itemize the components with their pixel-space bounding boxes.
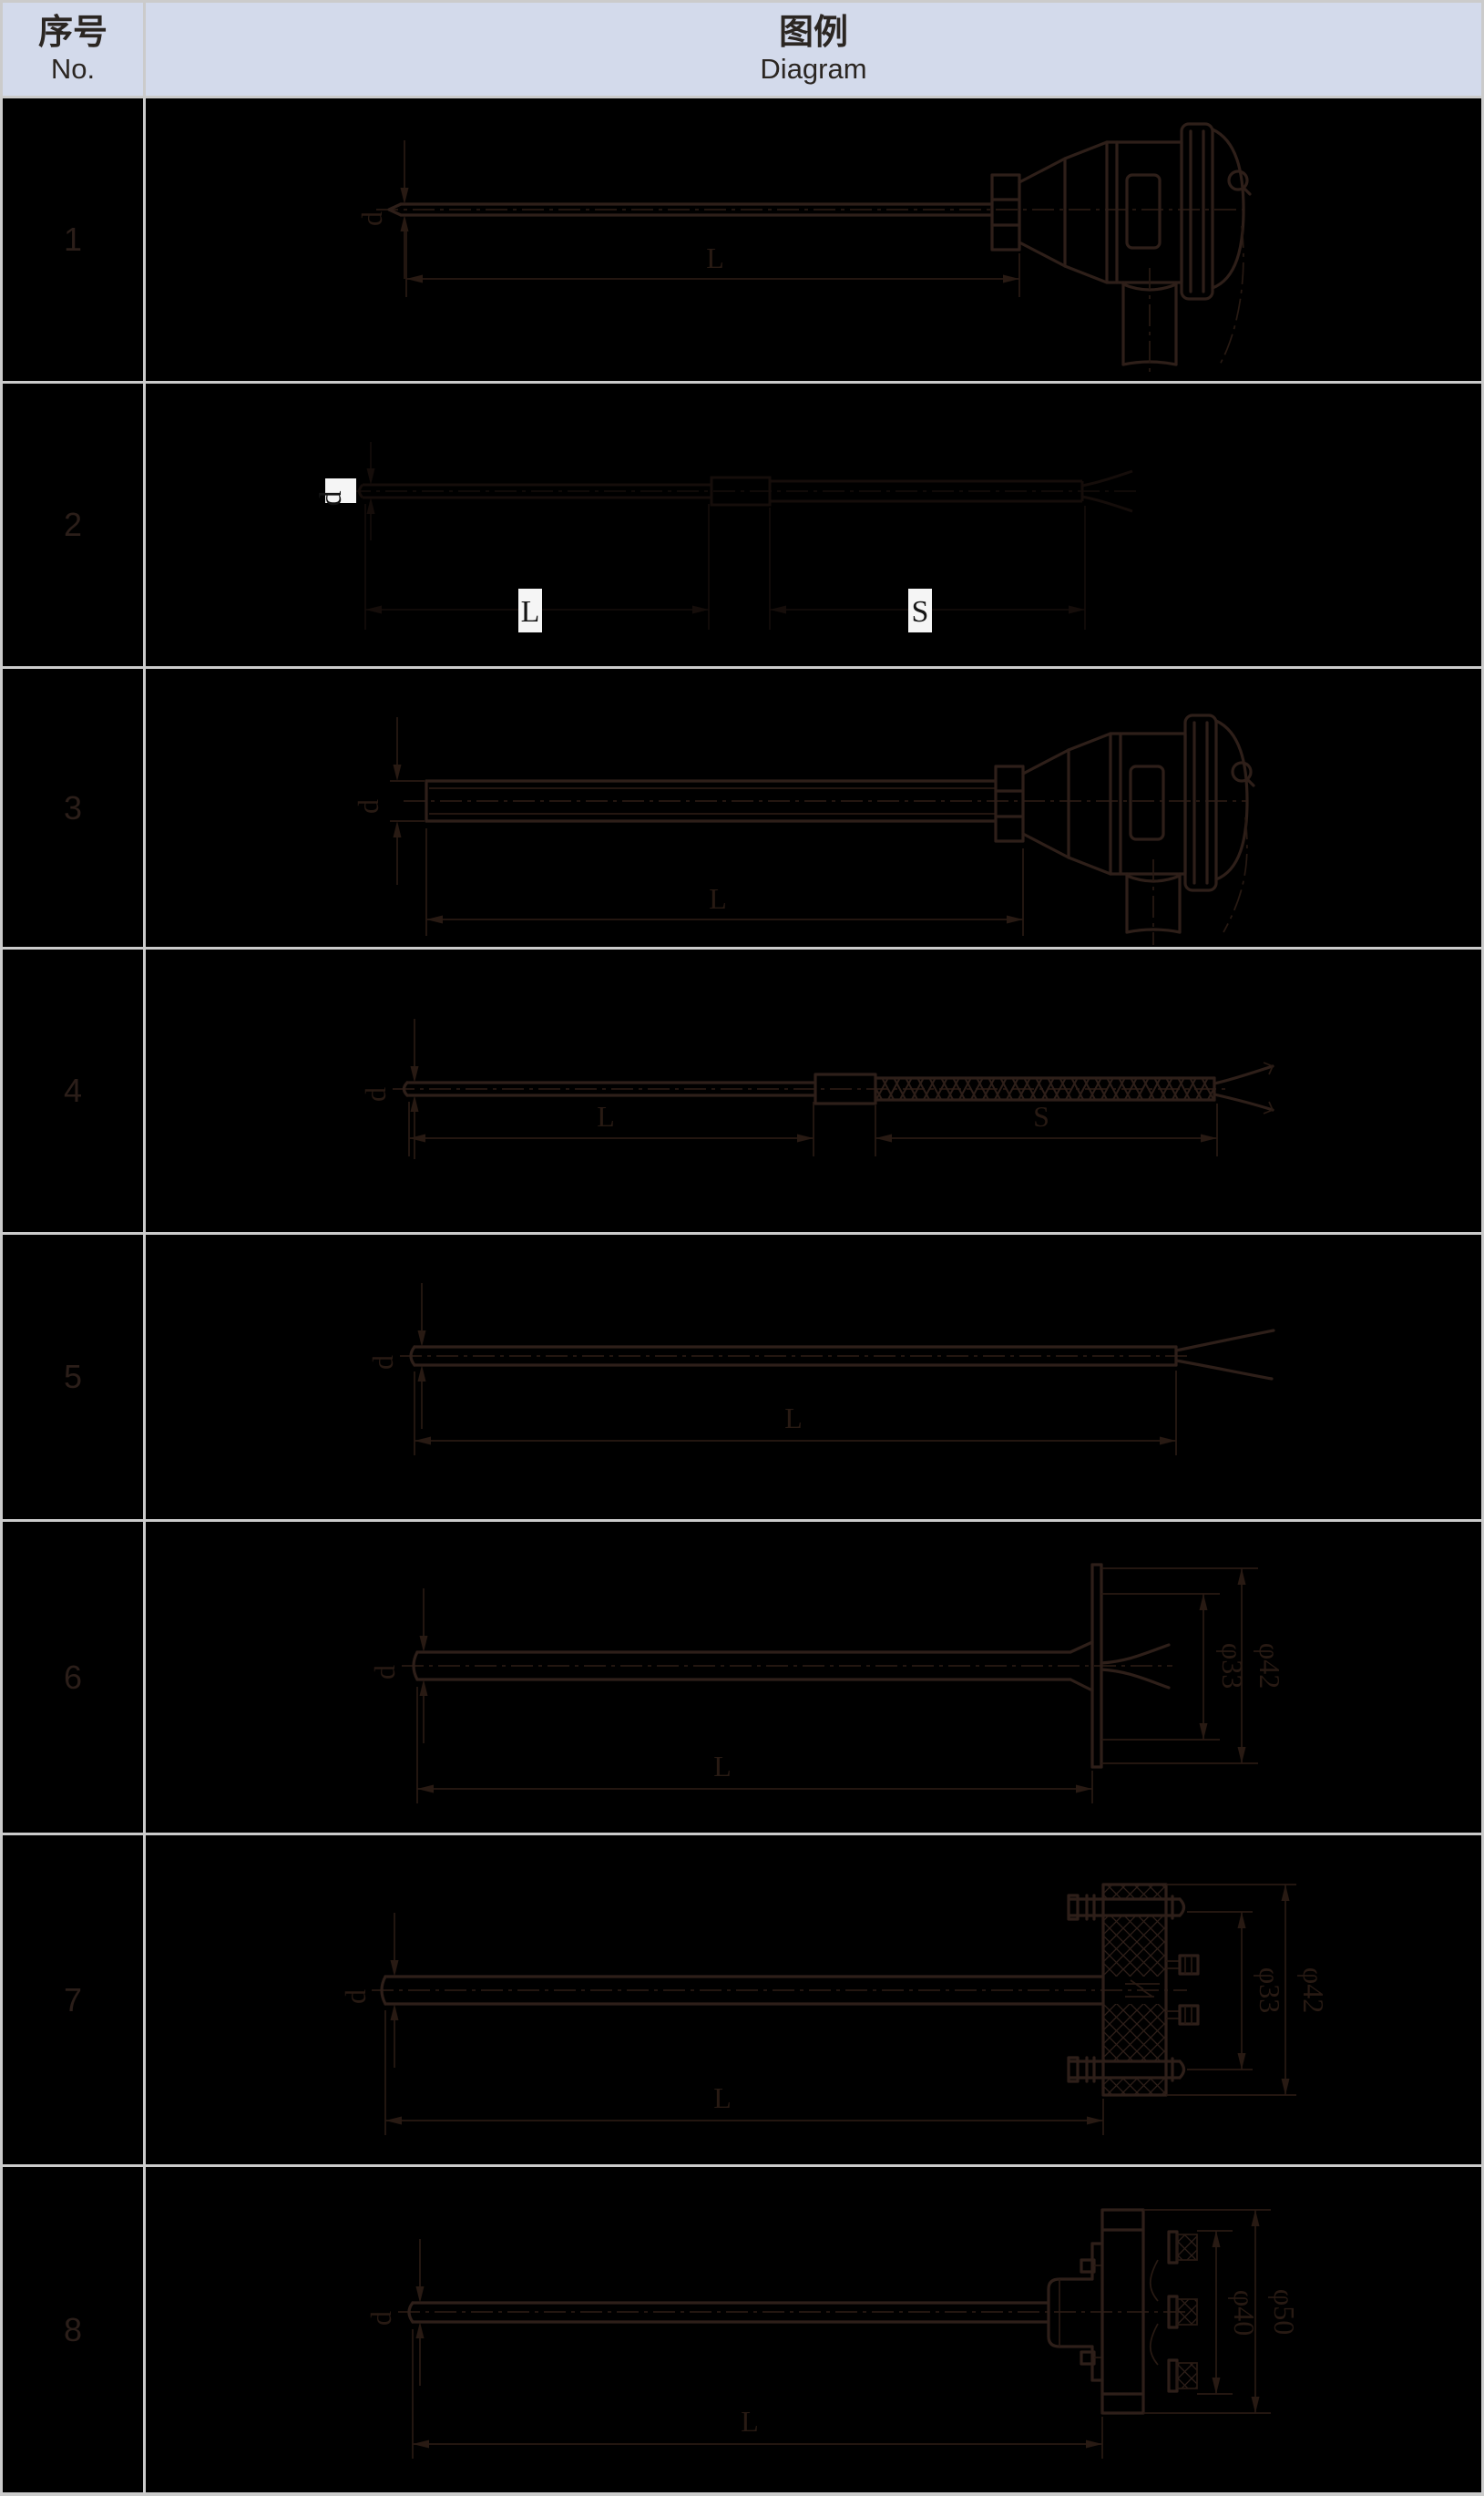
row-number: 3 [64,789,82,827]
diagram-probe-with-bare-leads: dL [146,1235,1481,1519]
diagram-probe-with-terminal-head: φ50φ40dL [146,2167,1481,2492]
svg-text:φ42: φ42 [1297,1967,1330,2013]
svg-text:d: d [364,2311,397,2326]
diagram-probe-with-braided-leads: dLS [146,950,1481,1232]
diagram-faint-cable-probe: dLS [146,384,1481,666]
row-number: 1 [64,221,82,259]
header-no-column: 序号 No. [3,3,143,96]
svg-text:L: L [706,241,724,274]
svg-text:φ33: φ33 [1216,1643,1249,1689]
row-number: 4 [64,1072,82,1110]
diagram-spec-table: 序号 No. 图例 Diagram 1 dL 2 dLS 3 dL 4 dLS … [0,0,1484,2496]
header-no-en: No. [51,54,95,85]
svg-text:d: d [359,1087,392,1102]
diagram-cell: dLS [146,950,1481,1232]
svg-text:φ50: φ50 [1268,2289,1301,2335]
diagram-cell: dLS [146,384,1481,666]
svg-text:φ33: φ33 [1254,1967,1286,2013]
header-no-zh: 序号 [38,14,107,54]
row-number: 7 [64,1981,82,2019]
svg-text:d: d [339,1989,372,2004]
row-number: 2 [64,506,82,544]
svg-text:d: d [355,211,388,226]
row-number-cell: 8 [3,2167,143,2492]
diagram-thermocouple-with-head: dL [146,98,1481,381]
svg-text:L: L [713,2081,732,2114]
svg-text:L: L [784,1402,803,1434]
svg-text:d: d [366,1355,399,1370]
diagram-cell: φ42φ33dL [146,1835,1481,2164]
svg-text:φ42: φ42 [1254,1643,1286,1689]
svg-text:d: d [368,1665,401,1679]
svg-text:S: S [912,595,929,629]
diagram-cell: dL [146,98,1481,381]
svg-text:d: d [352,799,384,814]
svg-text:d: d [314,491,348,507]
header-diagram-en: Diagram [760,54,866,85]
header-diagram-zh: 图例 [779,14,848,54]
diagram-cell: φ42φ33dL [146,1522,1481,1833]
svg-text:L: L [709,882,727,915]
diagram-cell: dL [146,669,1481,947]
row-number: 6 [64,1659,82,1697]
svg-text:φ40: φ40 [1228,2290,1261,2336]
svg-text:L: L [521,595,540,629]
svg-text:L: L [741,2405,759,2438]
row-number: 5 [64,1358,82,1396]
diagram-cell: dL [146,1235,1481,1519]
row-number-cell: 6 [3,1522,143,1833]
row-number-cell: 3 [3,669,143,947]
row-number-cell: 5 [3,1235,143,1519]
row-number: 8 [64,2311,82,2349]
diagram-probe-with-flange-disc: φ42φ33dL [146,1522,1481,1833]
row-number-cell: 2 [3,384,143,666]
diagram-probe-with-terminal-block: φ42φ33dL [146,1835,1481,2164]
row-number-cell: 7 [3,1835,143,2164]
diagram-cell: φ50φ40dL [146,2167,1481,2492]
row-number-cell: 1 [3,98,143,381]
header-diagram-column: 图例 Diagram [146,3,1481,96]
row-number-cell: 4 [3,950,143,1232]
svg-text:L: L [597,1100,615,1133]
svg-text:S: S [1033,1100,1049,1133]
svg-text:L: L [713,1750,732,1782]
diagram-sheathed-thermocouple-with-head: dL [146,669,1481,947]
